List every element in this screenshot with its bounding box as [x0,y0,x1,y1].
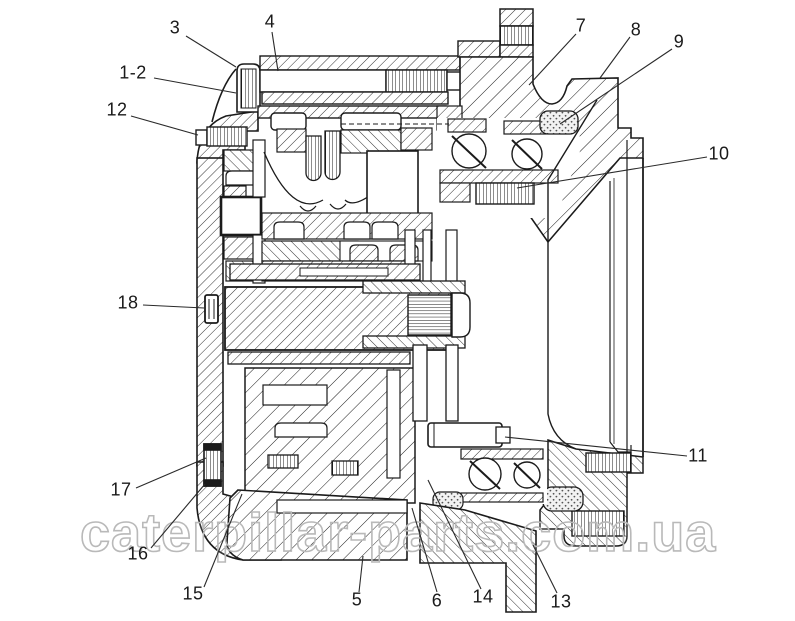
callout-label-14: 14 [472,587,493,608]
bolt-lower [268,455,298,468]
seal-17 [204,444,221,486]
spline-section [408,295,451,335]
bolt-lower [332,461,358,475]
bearing-cup [274,222,304,239]
callout-label-11: 11 [688,446,708,467]
callout-label-5: 5 [352,590,363,611]
bearing-cup [372,222,398,239]
callout-label-16: 16 [127,544,148,565]
pin-11 [428,423,510,447]
planetary-gears [262,113,457,282]
bearing-cup [350,245,378,261]
callout-label-7: 7 [576,16,587,37]
callout-label-18: 18 [117,293,138,314]
seal-stipple [543,487,583,511]
plug-18 [205,295,218,323]
callout-label-9: 9 [674,32,685,53]
threaded-ring-10 [476,183,534,204]
seal-12 [196,127,247,146]
screenshot-root: caterpillar-parts.com.ua 341-21218171615… [0,0,795,621]
callout-label-17: 17 [110,480,131,501]
stud-top [500,9,533,57]
callout-label-13: 13 [550,592,571,613]
callout-label-4: 4 [265,12,276,33]
bearing-cup [344,222,370,239]
base-plate [227,490,407,560]
bearing-lower [433,448,547,510]
callout-label-12: 12 [106,100,127,121]
planet-stud [306,136,321,181]
left-inner-column [221,140,265,283]
shaft-center [225,264,470,364]
carrier-web [446,345,458,421]
seal-9 [540,111,578,134]
threaded-ring [586,453,631,472]
threaded-ring [572,511,624,536]
planet-stud [325,131,340,180]
callout-label-8: 8 [631,20,642,41]
callout-label-15: 15 [182,584,203,605]
callout-label-10: 10 [708,144,729,165]
callout-label-1-2: 1-2 [119,63,147,84]
callout-label-3: 3 [170,18,181,39]
gear-lower [245,345,458,503]
housing-lower-right [540,440,643,546]
bearing-block [221,197,261,235]
carrier-web [413,345,427,421]
callout-label-6: 6 [432,591,443,612]
